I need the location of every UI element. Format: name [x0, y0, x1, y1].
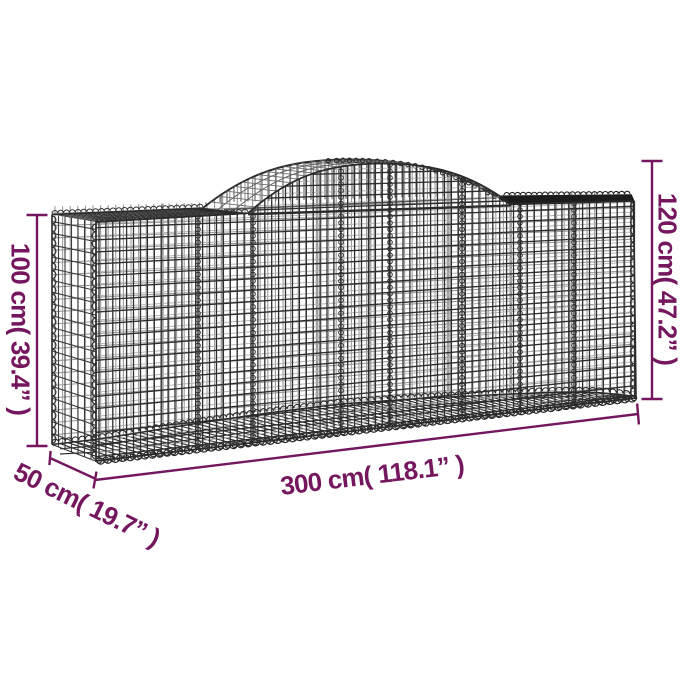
svg-text:100 cm( 39.4” ): 100 cm( 39.4” ): [6, 243, 36, 415]
svg-text:120 cm( 47.2” ): 120 cm( 47.2” ): [653, 193, 683, 365]
